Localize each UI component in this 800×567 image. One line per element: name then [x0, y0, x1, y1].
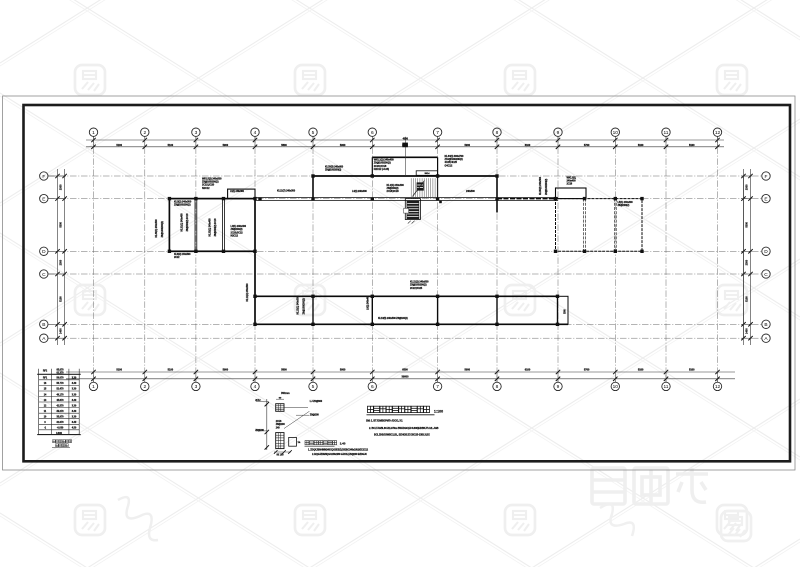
svg-text:5900: 5900 [465, 144, 471, 147]
svg-text:5100: 5100 [689, 369, 695, 372]
svg-text:F: F [42, 174, 45, 180]
svg-text:2300: 2300 [60, 259, 63, 265]
svg-text:KL13(5) 240x500 Z8@100(2): KL13(5) 240x500 Z8@100(2) [378, 317, 408, 320]
svg-text:LJ Z6@600: LJ Z6@600 [310, 400, 323, 403]
svg-text:3300: 3300 [565, 308, 567, 314]
svg-text:3.600: 3.600 [56, 433, 62, 435]
svg-text:L8(1) 240x400: L8(1) 240x400 [367, 295, 370, 310]
svg-text:Z8@200(2) 2C18: Z8@200(2) 2C18 [186, 213, 189, 232]
svg-text:5: 5 [312, 130, 315, 136]
svg-text:3.30: 3.30 [72, 417, 77, 419]
svg-text:6: 6 [371, 384, 374, 390]
svg-text:39600: 39600 [402, 375, 410, 378]
svg-text:65.670: 65.670 [56, 370, 64, 372]
svg-text:5900: 5900 [223, 144, 229, 147]
svg-text:60 180: 60 180 [276, 454, 284, 456]
svg-text:Z8@100/200(2): Z8@100/200(2) [545, 179, 548, 195]
svg-text:5100: 5100 [60, 296, 63, 302]
svg-text:1. ZDQKJBNHWM240CQGSDBZ,GSDBC2: 1. ZDQKJBNHWM240CQGSDBZ,GSDBC240x180,NZC… [308, 449, 369, 452]
svg-text:N2C12: N2C12 [202, 186, 210, 190]
svg-text:Z8@100/200(2): Z8@100/200(2) [325, 168, 341, 171]
svg-text:E: E [764, 196, 767, 202]
svg-text:59.070: 59.070 [56, 378, 64, 380]
svg-text:5100: 5100 [746, 296, 749, 302]
svg-text:-0.030: -0.030 [57, 428, 64, 430]
svg-text:Z8@200(2) 2C18: Z8@200(2) 2C18 [214, 218, 217, 237]
svg-text:5100: 5100 [116, 144, 122, 147]
svg-text:7: 7 [436, 384, 439, 390]
svg-text:3.30: 3.30 [72, 400, 77, 402]
svg-text:5100: 5100 [689, 144, 695, 147]
svg-text:45.870: 45.870 [56, 399, 64, 402]
svg-text:12: 12 [715, 130, 721, 136]
svg-text:E: E [42, 196, 45, 202]
svg-text:2300: 2300 [60, 184, 63, 190]
svg-text:8: 8 [496, 384, 499, 390]
svg-text:52.470: 52.470 [56, 388, 64, 391]
svg-text:10: 10 [613, 384, 619, 390]
svg-text:2C18;2C20: 2C18;2C20 [387, 189, 400, 193]
svg-text:KL11(1) 240x500: KL11(1) 240x500 [246, 283, 249, 302]
svg-text:5100: 5100 [638, 144, 644, 147]
svg-text:2C18: 2C18 [567, 183, 573, 186]
svg-text:KL35(2) 240x500: KL35(2) 240x500 [539, 176, 542, 195]
svg-text:F: F [765, 174, 768, 180]
svg-text:1400: 1400 [746, 328, 749, 334]
svg-text:KL12(1) 240x500: KL12(1) 240x500 [297, 296, 300, 315]
svg-text:2. BQGJZDBNQGC240x180 GJ2C12,Z: 2. BQGJZDBNQGC240x180 GJ2C12,Z6@200 BZDG… [312, 453, 367, 456]
svg-text:6500: 6500 [402, 369, 408, 372]
svg-text:3.30: 3.30 [72, 394, 77, 396]
svg-text:6: 6 [371, 130, 374, 136]
svg-text:32.670: 32.670 [56, 422, 64, 424]
svg-text:42.570: 42.570 [56, 404, 64, 407]
svg-text:55.770: 55.770 [56, 383, 64, 385]
svg-text:9: 9 [557, 130, 560, 136]
svg-text:9: 9 [557, 384, 560, 390]
svg-text:KL30(1) 240x500: KL30(1) 240x500 [155, 219, 158, 238]
svg-text:5: 5 [312, 384, 315, 390]
svg-text:3.30: 3.30 [72, 422, 77, 424]
svg-text:6100: 6100 [525, 144, 531, 147]
svg-text:3: 3 [195, 130, 198, 136]
svg-text:C: C [42, 272, 46, 278]
svg-text:8: 8 [496, 130, 499, 136]
svg-text:5900: 5900 [223, 369, 229, 372]
svg-text:2: 2 [143, 130, 146, 136]
svg-text:5614: 5614 [425, 172, 431, 175]
svg-text:KL32(1) 240x450: KL32(1) 240x450 [209, 218, 212, 237]
svg-text:5100: 5100 [168, 144, 174, 147]
svg-text:N2C12 (-0.05): N2C12 (-0.05) [374, 167, 389, 171]
svg-text:D: D [42, 249, 46, 255]
svg-text:2300: 2300 [746, 259, 749, 265]
svg-text:DW:mm: DW:mm [281, 392, 290, 395]
svg-text:1: 1 [92, 130, 95, 136]
svg-text:11: 11 [664, 384, 669, 390]
svg-text:Z8@100/200(2): Z8@100/200(2) [303, 298, 306, 314]
svg-text:3.30: 3.30 [72, 405, 77, 407]
svg-text:Z8@200: Z8@200 [310, 413, 320, 416]
svg-text:1: 1 [92, 384, 95, 390]
svg-text:11: 11 [664, 130, 669, 136]
svg-text:5800: 5800 [281, 144, 287, 147]
svg-text:5700: 5700 [584, 144, 590, 147]
svg-text:L1(1) 240x300: L1(1) 240x300 [230, 190, 245, 193]
svg-text:5700: 5700 [584, 369, 590, 372]
svg-text:2300: 2300 [746, 184, 749, 190]
svg-text:C: C [764, 272, 768, 278]
svg-text:1:100: 1:100 [434, 409, 443, 413]
svg-text:D: D [764, 249, 768, 255]
svg-text:5900: 5900 [465, 369, 471, 372]
svg-text:2C22;3C25: 2C22;3C25 [410, 286, 423, 290]
svg-text:Z8@200: Z8@200 [255, 429, 264, 432]
svg-text:4.50: 4.50 [72, 427, 77, 430]
svg-text:KL21(7) 240x500: KL21(7) 240x500 [277, 190, 296, 193]
svg-text:B: B [764, 322, 767, 328]
svg-text:5800: 5800 [281, 369, 287, 372]
svg-text:5100: 5100 [638, 369, 644, 372]
svg-text:N2C12: N2C12 [231, 233, 239, 237]
svg-text:4: 4 [254, 384, 257, 390]
svg-text:Z8@200(2): Z8@200(2) [618, 204, 630, 207]
svg-text:KL31(1) 240x450: KL31(1) 240x450 [181, 213, 184, 232]
svg-text:2C22: 2C22 [174, 256, 180, 259]
svg-text:62.370: 62.370 [56, 372, 64, 374]
svg-text:6100: 6100 [525, 369, 531, 372]
svg-text:7: 7 [436, 130, 439, 136]
svg-text:5300: 5300 [746, 222, 749, 228]
svg-text:4: 4 [254, 130, 257, 136]
svg-text:2C12: 2C12 [255, 399, 261, 402]
svg-text:5900: 5900 [340, 144, 346, 147]
svg-text:5300: 5300 [60, 222, 63, 228]
svg-text:5100: 5100 [168, 369, 174, 372]
svg-text:Z8@100/200(2): Z8@100/200(2) [174, 203, 191, 207]
svg-text:240x500: 240x500 [466, 190, 475, 193]
svg-text:BCLZHBJGWBC1.BL, BZHGBJZ DBC25: BCLZHBJGWBC1.BL, BZHGBJZ DBC25-13BL3.BX [374, 434, 430, 437]
svg-text:RF2: RF2 [43, 370, 48, 372]
svg-text:3: 3 [195, 384, 198, 390]
svg-text:1400: 1400 [60, 328, 63, 334]
svg-text:3.30: 3.30 [72, 383, 77, 385]
svg-text:G4C12: G4C12 [445, 163, 453, 167]
svg-text:10: 10 [613, 130, 619, 136]
svg-text:SM: 1. BTJGMBGPMT+JGCG, XJ.: SM: 1. BTJGMBGPMT+JGCG, XJ. [366, 420, 403, 423]
svg-text:3.30: 3.30 [72, 389, 77, 391]
svg-text:3.30: 3.30 [72, 411, 77, 413]
svg-text:RF1: RF1 [43, 378, 48, 380]
svg-text:1:40: 1:40 [340, 441, 346, 445]
svg-text:B: B [42, 322, 45, 328]
svg-text:4000: 4000 [403, 137, 409, 140]
svg-text:3.30: 3.30 [72, 378, 77, 380]
svg-text:2. BCLTJGBL6CJ11.970m BWJDGC(H: 2. BCLTJGBL6CJ11.970m BWJDGC(H=3.600)HDB… [369, 427, 439, 430]
svg-text:49.170: 49.170 [56, 393, 64, 396]
svg-text:2: 2 [143, 384, 146, 390]
svg-text:5100: 5100 [116, 369, 122, 372]
svg-text:L4(1) 240x300: L4(1) 240x300 [352, 190, 367, 193]
svg-text:Z8@100/200(2): Z8@100/200(2) [161, 221, 164, 237]
svg-text:12: 12 [715, 384, 721, 390]
svg-text:5900: 5900 [340, 369, 346, 372]
svg-text:39.270: 39.270 [56, 411, 64, 413]
svg-text:35.970: 35.970 [56, 417, 64, 419]
